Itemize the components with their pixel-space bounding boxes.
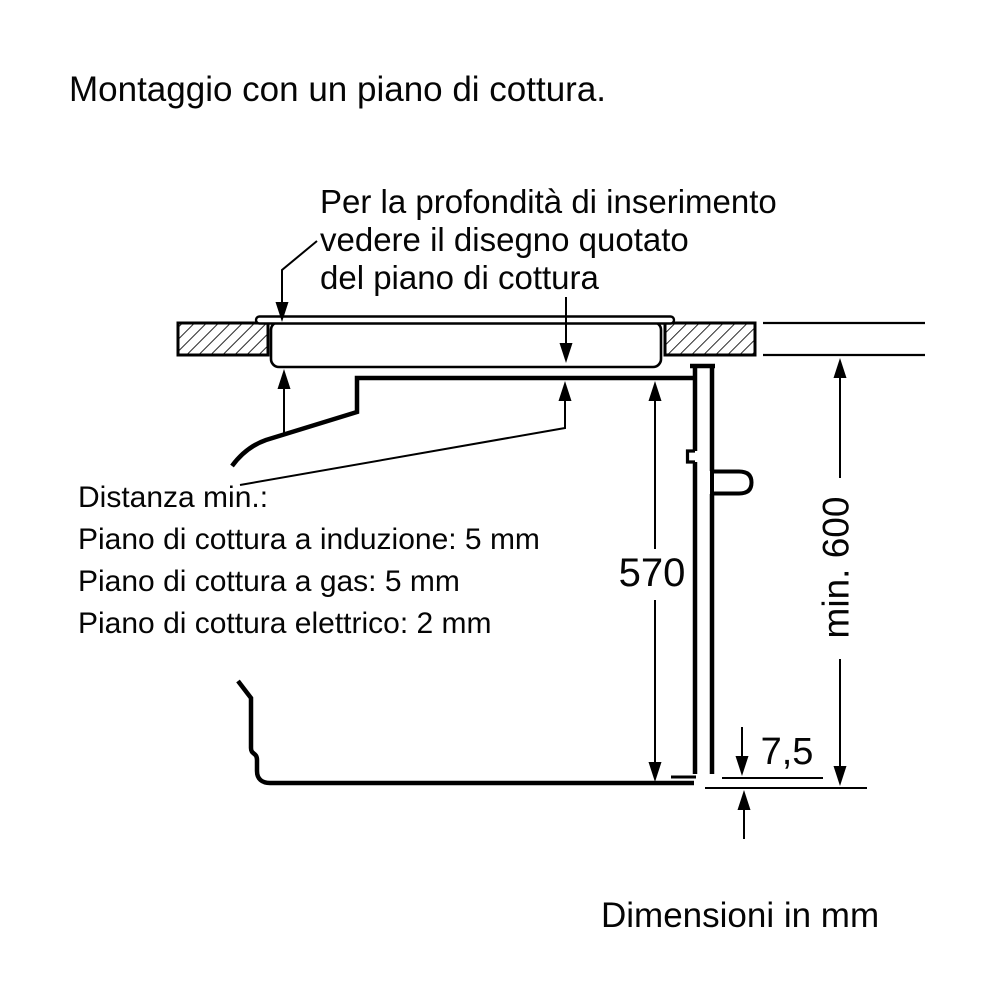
min-distance-gas: Piano di cottura a gas: 5 mm bbox=[78, 561, 540, 603]
cooktop-tub bbox=[271, 322, 661, 367]
oven-door-knob bbox=[712, 472, 752, 494]
leader-insertion-note bbox=[276, 241, 318, 322]
countertop-section-left bbox=[178, 323, 268, 355]
insertion-depth-note-line-3: del piano di cottura bbox=[320, 259, 777, 297]
dimension-label-7-5: 7,5 bbox=[747, 731, 827, 774]
page-title: Montaggio con un piano di cottura. bbox=[69, 70, 606, 110]
min-distance-induction: Piano di cottura a induzione: 5 mm bbox=[78, 519, 540, 561]
dimension-label-min-600: min. 600 bbox=[816, 458, 857, 678]
installation-diagram: Montaggio con un piano di cottura. Per l… bbox=[0, 0, 1000, 1000]
cooktop-glass-lip bbox=[256, 317, 674, 324]
insertion-depth-note: Per la profondità di inserimento vedere … bbox=[320, 183, 777, 297]
units-note: Dimensioni in mm bbox=[601, 896, 879, 936]
dimension-label-570: 570 bbox=[610, 551, 694, 596]
min-distance-note-heading: Distanza min.: bbox=[78, 477, 540, 519]
min-distance-electric: Piano di cottura elettrico: 2 mm bbox=[78, 603, 540, 645]
countertop-continuation-lines bbox=[763, 323, 925, 355]
insertion-depth-note-line-1: Per la profondità di inserimento bbox=[320, 183, 777, 221]
leader-min-distance bbox=[240, 369, 572, 485]
countertop-section-right bbox=[665, 323, 755, 355]
min-distance-note: Distanza min.: Piano di cottura a induzi… bbox=[78, 477, 540, 645]
insertion-depth-note-line-2: vedere il disegno quotato bbox=[320, 221, 777, 259]
